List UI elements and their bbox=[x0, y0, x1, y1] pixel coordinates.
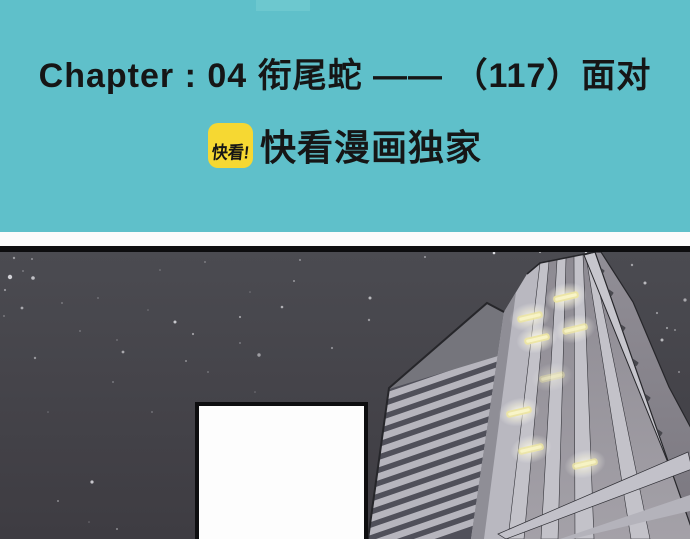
kuaikan-exclusive-label: 快看漫画独家 bbox=[260, 119, 482, 171]
publisher-logo-row: 快看! 快看漫画独家 bbox=[0, 120, 690, 170]
chapter-title: Chapter : 04 衔尾蛇 —— （117）面对 bbox=[0, 52, 690, 100]
kuaikan-logo-badge-text: 快看! bbox=[210, 137, 250, 163]
kuaikan-logo-badge: 快看! bbox=[208, 123, 253, 168]
panel-gap bbox=[0, 232, 690, 246]
speech-bubble bbox=[195, 402, 368, 539]
comic-page: Chapter : 04 衔尾蛇 —— （117）面对 快看! 快看漫画独家 bbox=[0, 0, 690, 539]
header-artifact-patch bbox=[256, 0, 310, 11]
chapter-header: Chapter : 04 衔尾蛇 —— （117）面对 快看! 快看漫画独家 bbox=[0, 0, 690, 232]
